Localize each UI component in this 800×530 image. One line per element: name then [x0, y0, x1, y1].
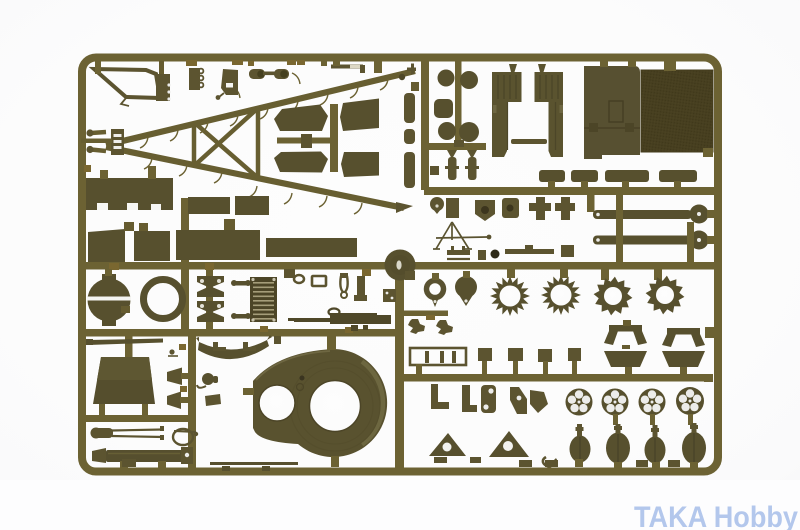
svg-text:TAKA Hobby: TAKA Hobby — [634, 501, 798, 530]
